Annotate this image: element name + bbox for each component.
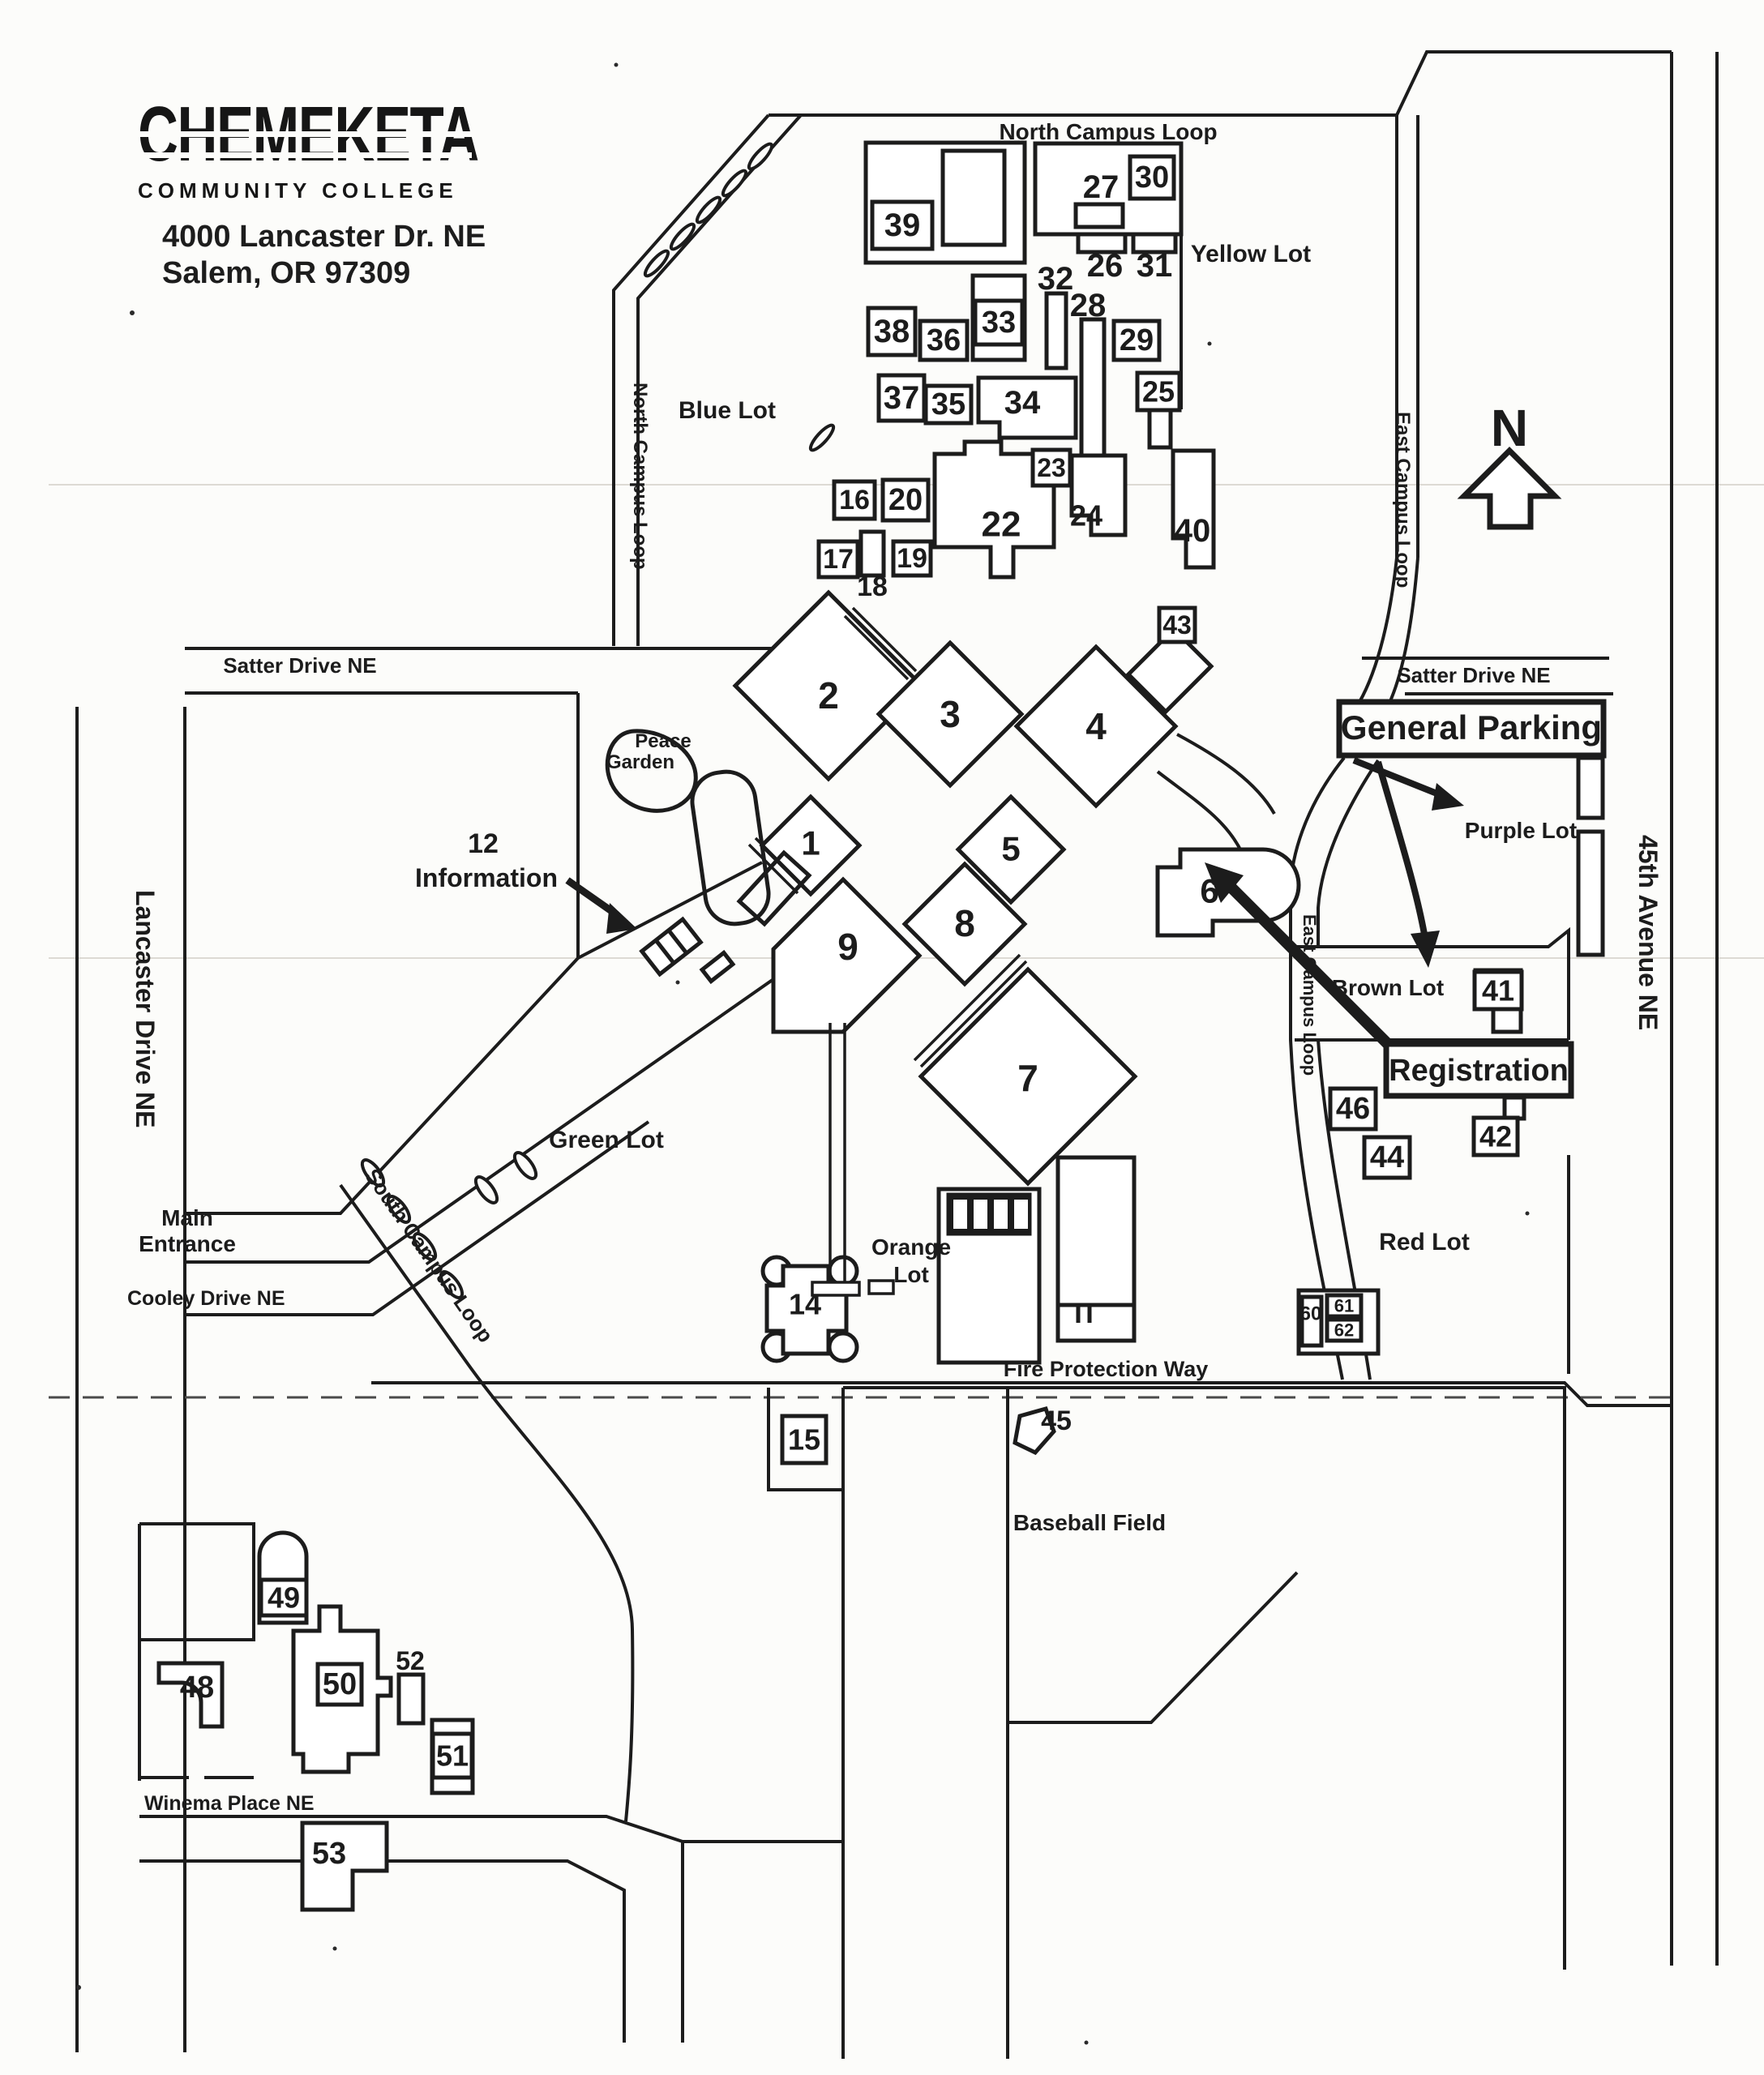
svg-text:16: 16	[839, 485, 870, 516]
logo-stencil-cut	[138, 131, 472, 137]
building-39-inner	[943, 151, 1004, 245]
svg-text:45: 45	[1041, 1405, 1072, 1436]
general-parking-label: General Parking	[1341, 708, 1602, 747]
registration-label: Registration	[1389, 1054, 1569, 1088]
building-marker-49: 49	[261, 1580, 306, 1615]
svg-text:40: 40	[1175, 513, 1211, 549]
svg-text:44: 44	[1370, 1140, 1404, 1174]
building-marker-7: 7	[1017, 1057, 1038, 1099]
information-arrow-head	[606, 903, 637, 934]
svg-text:27: 27	[1083, 169, 1120, 205]
fire-protection-way-label: Fire Protection Way	[1004, 1357, 1209, 1381]
building-marker-15: 15	[782, 1416, 826, 1463]
road-winema	[139, 1816, 843, 1842]
information-arrow	[567, 880, 616, 914]
kiosk-annex	[702, 952, 733, 981]
building-marker-38: 38	[868, 308, 915, 355]
svg-text:17: 17	[823, 544, 854, 575]
svg-text:46: 46	[1336, 1092, 1370, 1126]
blue-lot-label: Blue Lot	[679, 397, 776, 424]
building-marker-2: 2	[818, 674, 839, 717]
road-north-campus-loop	[638, 115, 801, 646]
svg-text:8: 8	[954, 902, 975, 944]
svg-text:25: 25	[1142, 375, 1175, 409]
main-entrance-label: Entrance	[139, 1231, 236, 1256]
building-marker-5: 5	[1001, 830, 1020, 868]
building-marker-50: 50	[318, 1664, 362, 1705]
building-marker-60: 60	[1300, 1303, 1322, 1325]
svg-text:32: 32	[1038, 261, 1074, 297]
road-east-campus-loop	[1352, 558, 1397, 713]
svg-text:34: 34	[1004, 385, 1041, 421]
purple-lot-label: Purple Lot	[1465, 818, 1577, 843]
satter-drive-east-label: Satter Drive NE	[1397, 663, 1550, 687]
building-40	[1173, 451, 1214, 567]
svg-text:18: 18	[857, 571, 888, 602]
svg-text:14: 14	[789, 1288, 821, 1321]
building-marker-3: 3	[940, 693, 961, 735]
svg-text:50: 50	[323, 1667, 357, 1701]
building-marker-22: 22	[982, 505, 1021, 545]
road-east-campus-loop	[1318, 760, 1378, 947]
svg-text:52: 52	[396, 1646, 425, 1675]
campus-curves	[1177, 734, 1274, 814]
building-28-bar	[1081, 319, 1104, 477]
satter-drive-west-label: Satter Drive NE	[223, 653, 376, 678]
information-kiosk	[642, 919, 701, 974]
building-marker-43: 43	[1159, 608, 1195, 642]
baseball-field-boundary	[1008, 1572, 1297, 1722]
building-42-tail	[1505, 1097, 1524, 1119]
svg-text:31: 31	[1137, 248, 1173, 284]
general-parking-arrow-head	[1432, 783, 1464, 811]
building-marker-39: 39	[872, 202, 932, 249]
svg-text:9: 9	[837, 926, 858, 968]
building-marker-61: 61	[1327, 1295, 1361, 1316]
building-marker-9: 9	[837, 926, 858, 968]
svg-text:24: 24	[1070, 499, 1102, 533]
svg-text:48: 48	[180, 1671, 214, 1705]
winema-place-label: Winema Place NE	[144, 1792, 315, 1815]
building-18-bar	[861, 532, 884, 575]
svg-text:30: 30	[1135, 160, 1169, 195]
north-arrow-icon	[1464, 451, 1555, 527]
orange-lot-label: Lot	[893, 1262, 929, 1287]
building-marker-42: 42	[1474, 1118, 1518, 1155]
svg-text:43: 43	[1162, 610, 1192, 640]
red-lot-label: Red Lot	[1379, 1229, 1470, 1256]
svg-text:29: 29	[1120, 323, 1154, 357]
building-marker-29: 29	[1114, 321, 1159, 360]
svg-text:33: 33	[982, 306, 1016, 340]
building-14-corner	[829, 1257, 857, 1285]
road-winema	[139, 1861, 624, 2043]
peace-garden-label: Peace	[635, 730, 691, 752]
building-marker-62: 62	[1327, 1320, 1361, 1341]
logo-stencil-cut	[138, 152, 472, 158]
svg-text:23: 23	[1037, 453, 1066, 482]
building-marker-26: 26	[1087, 248, 1124, 284]
svg-text:49: 49	[268, 1581, 300, 1615]
building-52-bar	[399, 1675, 423, 1723]
svg-text:36: 36	[927, 323, 961, 357]
pool-block	[1058, 1157, 1134, 1341]
svg-text:61: 61	[1334, 1296, 1354, 1316]
building-marker-4: 4	[1085, 705, 1107, 747]
building-marker-1: 1	[801, 824, 820, 862]
building-marker-20: 20	[883, 480, 928, 520]
svg-text:2: 2	[818, 674, 839, 717]
building-marker-48: 48	[180, 1671, 214, 1705]
orange-lot-label: Orange	[871, 1234, 951, 1260]
purple-lot-row	[1578, 832, 1603, 955]
svg-text:26: 26	[1087, 248, 1124, 284]
lot-boundary-southwest	[139, 1524, 254, 1640]
general-parking-arrow2-head	[1411, 931, 1440, 968]
building-marker-18: 18	[857, 571, 888, 602]
building-32-bar	[1047, 293, 1066, 368]
building-marker-23: 23	[1033, 450, 1070, 486]
svg-text:51: 51	[436, 1739, 469, 1773]
college-logo: CHEMEKETA COMMUNITY COLLEGE	[138, 96, 527, 203]
building-marker-46: 46	[1330, 1089, 1376, 1129]
building-marker-24: 24	[1070, 499, 1102, 533]
svg-text:28: 28	[1070, 288, 1107, 323]
campus-curves	[1158, 772, 1242, 853]
address-line1: 4000 Lancaster Dr. NE	[162, 219, 486, 255]
building-marker-40: 40	[1175, 513, 1211, 549]
building-marker-36: 36	[920, 321, 967, 360]
building-marker-51: 51	[433, 1734, 472, 1778]
svg-text:53: 53	[312, 1837, 346, 1871]
building-25-tail	[1150, 410, 1171, 447]
svg-text:22: 22	[982, 505, 1021, 545]
building-marker-27: 27	[1083, 169, 1120, 205]
svg-text:62: 62	[1334, 1320, 1354, 1341]
svg-text:5: 5	[1001, 830, 1020, 868]
brown-lot-label: Brown Lot	[1332, 975, 1444, 1000]
lancaster-drive-label: Lancaster Drive NE	[131, 890, 160, 1127]
building-marker-41: 41	[1475, 972, 1522, 1009]
building-marker-16: 16	[834, 481, 875, 519]
svg-text:4: 4	[1085, 705, 1107, 747]
building-marker-53: 53	[312, 1837, 346, 1871]
building-marker-25: 25	[1137, 373, 1180, 410]
svg-text:19: 19	[897, 543, 927, 574]
baseball-field-boundary	[1008, 1388, 1565, 1970]
building-marker-19: 19	[893, 541, 931, 575]
building-marker-32: 32	[1038, 261, 1074, 297]
svg-text:60: 60	[1300, 1303, 1322, 1325]
track-field-boundary	[843, 1388, 1008, 2059]
svg-text:35: 35	[931, 387, 965, 421]
svg-text:15: 15	[788, 1423, 820, 1457]
building-marker-35: 35	[926, 386, 971, 423]
svg-text:42: 42	[1479, 1120, 1512, 1153]
building-marker-34: 34	[1004, 385, 1041, 421]
campus-map-page: CHEMEKETA COMMUNITY COLLEGE 4000 Lancast…	[0, 0, 1764, 2075]
svg-text:41: 41	[1482, 974, 1514, 1008]
college-address: 4000 Lancaster Dr. NE Salem, OR 97309	[162, 219, 486, 292]
building-marker-8: 8	[954, 902, 975, 944]
building-14-corner	[829, 1333, 857, 1361]
main-entrance-label: Main	[161, 1205, 213, 1230]
north-campus-loop-west-label: North Campus Loop	[629, 383, 651, 570]
building-marker-45: 45	[1041, 1405, 1072, 1436]
road-south-campus-loop	[340, 1185, 632, 1821]
building-marker-17: 17	[819, 541, 858, 577]
plaza-parallelogram	[739, 853, 809, 924]
purple-lot-row	[1578, 758, 1603, 818]
svg-text:39: 39	[884, 207, 921, 243]
yellow-lot-label: Yellow Lot	[1191, 241, 1311, 267]
information-number-label: 12	[468, 828, 499, 859]
address-line2: Salem, OR 97309	[162, 255, 486, 292]
building-marker-14: 14	[789, 1288, 821, 1321]
information-label: Information	[415, 863, 558, 892]
svg-text:38: 38	[874, 314, 910, 349]
cooley-drive-label: Cooley Drive NE	[127, 1287, 285, 1310]
building-marker-28: 28	[1070, 288, 1107, 323]
building-marker-31: 31	[1137, 248, 1173, 284]
green-lot-label: Green Lot	[549, 1127, 664, 1153]
north-campus-loop-label: North Campus Loop	[999, 119, 1217, 144]
building-marker-37: 37	[879, 375, 924, 421]
svg-text:7: 7	[1017, 1057, 1038, 1099]
logo-subtitle: COMMUNITY COLLEGE	[138, 178, 527, 203]
north-compass: N	[1464, 399, 1555, 527]
baseball-field-label: Baseball Field	[1013, 1510, 1166, 1535]
campus-map: 3927302631322833383637353429252324162017…	[0, 0, 1764, 2075]
building-marker-44: 44	[1364, 1137, 1410, 1178]
plaza-loop	[688, 768, 772, 927]
east-campus-loop-north-label: East Campus Loop	[1392, 412, 1414, 588]
building-marker-33: 33	[975, 301, 1022, 344]
road-main-entrance	[185, 862, 762, 1213]
road-north-campus-loop	[1397, 52, 1672, 115]
building-marker-52: 52	[396, 1646, 425, 1675]
building-marker-30: 30	[1130, 156, 1174, 199]
east-campus-loop-south-label: East Campus Loop	[1299, 914, 1320, 1076]
svg-text:20: 20	[888, 483, 923, 517]
building-27-annex	[1076, 204, 1123, 227]
svg-text:3: 3	[940, 693, 961, 735]
peace-garden-label: Garden	[606, 751, 674, 773]
svg-text:1: 1	[801, 824, 820, 862]
45th-avenue-label: 45th Avenue NE	[1633, 835, 1663, 1030]
svg-text:37: 37	[884, 380, 920, 416]
